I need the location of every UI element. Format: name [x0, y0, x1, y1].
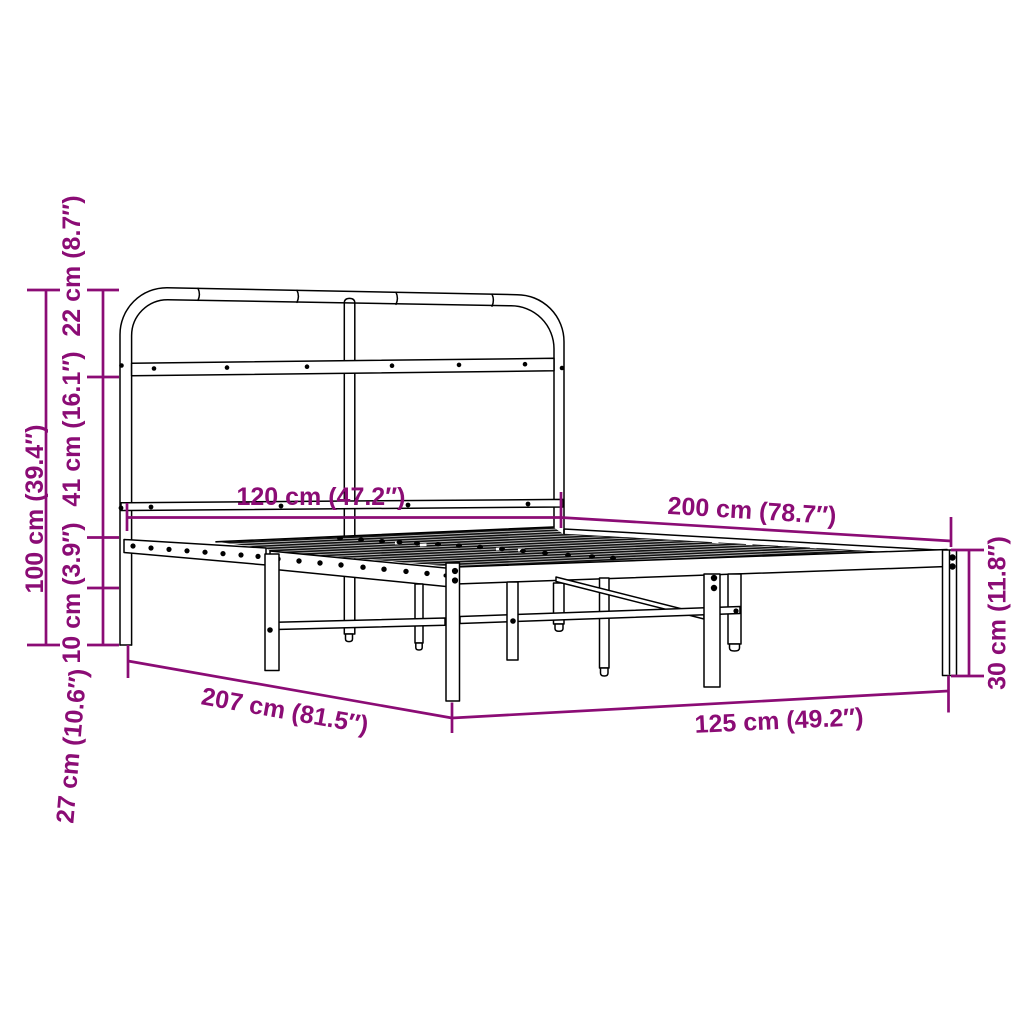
- svg-text:41 cm (16.1″): 41 cm (16.1″): [58, 351, 86, 506]
- svg-text:10 cm (3.9″): 10 cm (3.9″): [58, 522, 86, 663]
- svg-text:30 cm (11.8″): 30 cm (11.8″): [984, 536, 1012, 690]
- svg-text:22 cm (8.7″): 22 cm (8.7″): [58, 195, 86, 336]
- svg-text:120 cm (47.2″): 120 cm (47.2″): [236, 483, 405, 511]
- svg-text:100 cm (39.4″): 100 cm (39.4″): [21, 424, 49, 593]
